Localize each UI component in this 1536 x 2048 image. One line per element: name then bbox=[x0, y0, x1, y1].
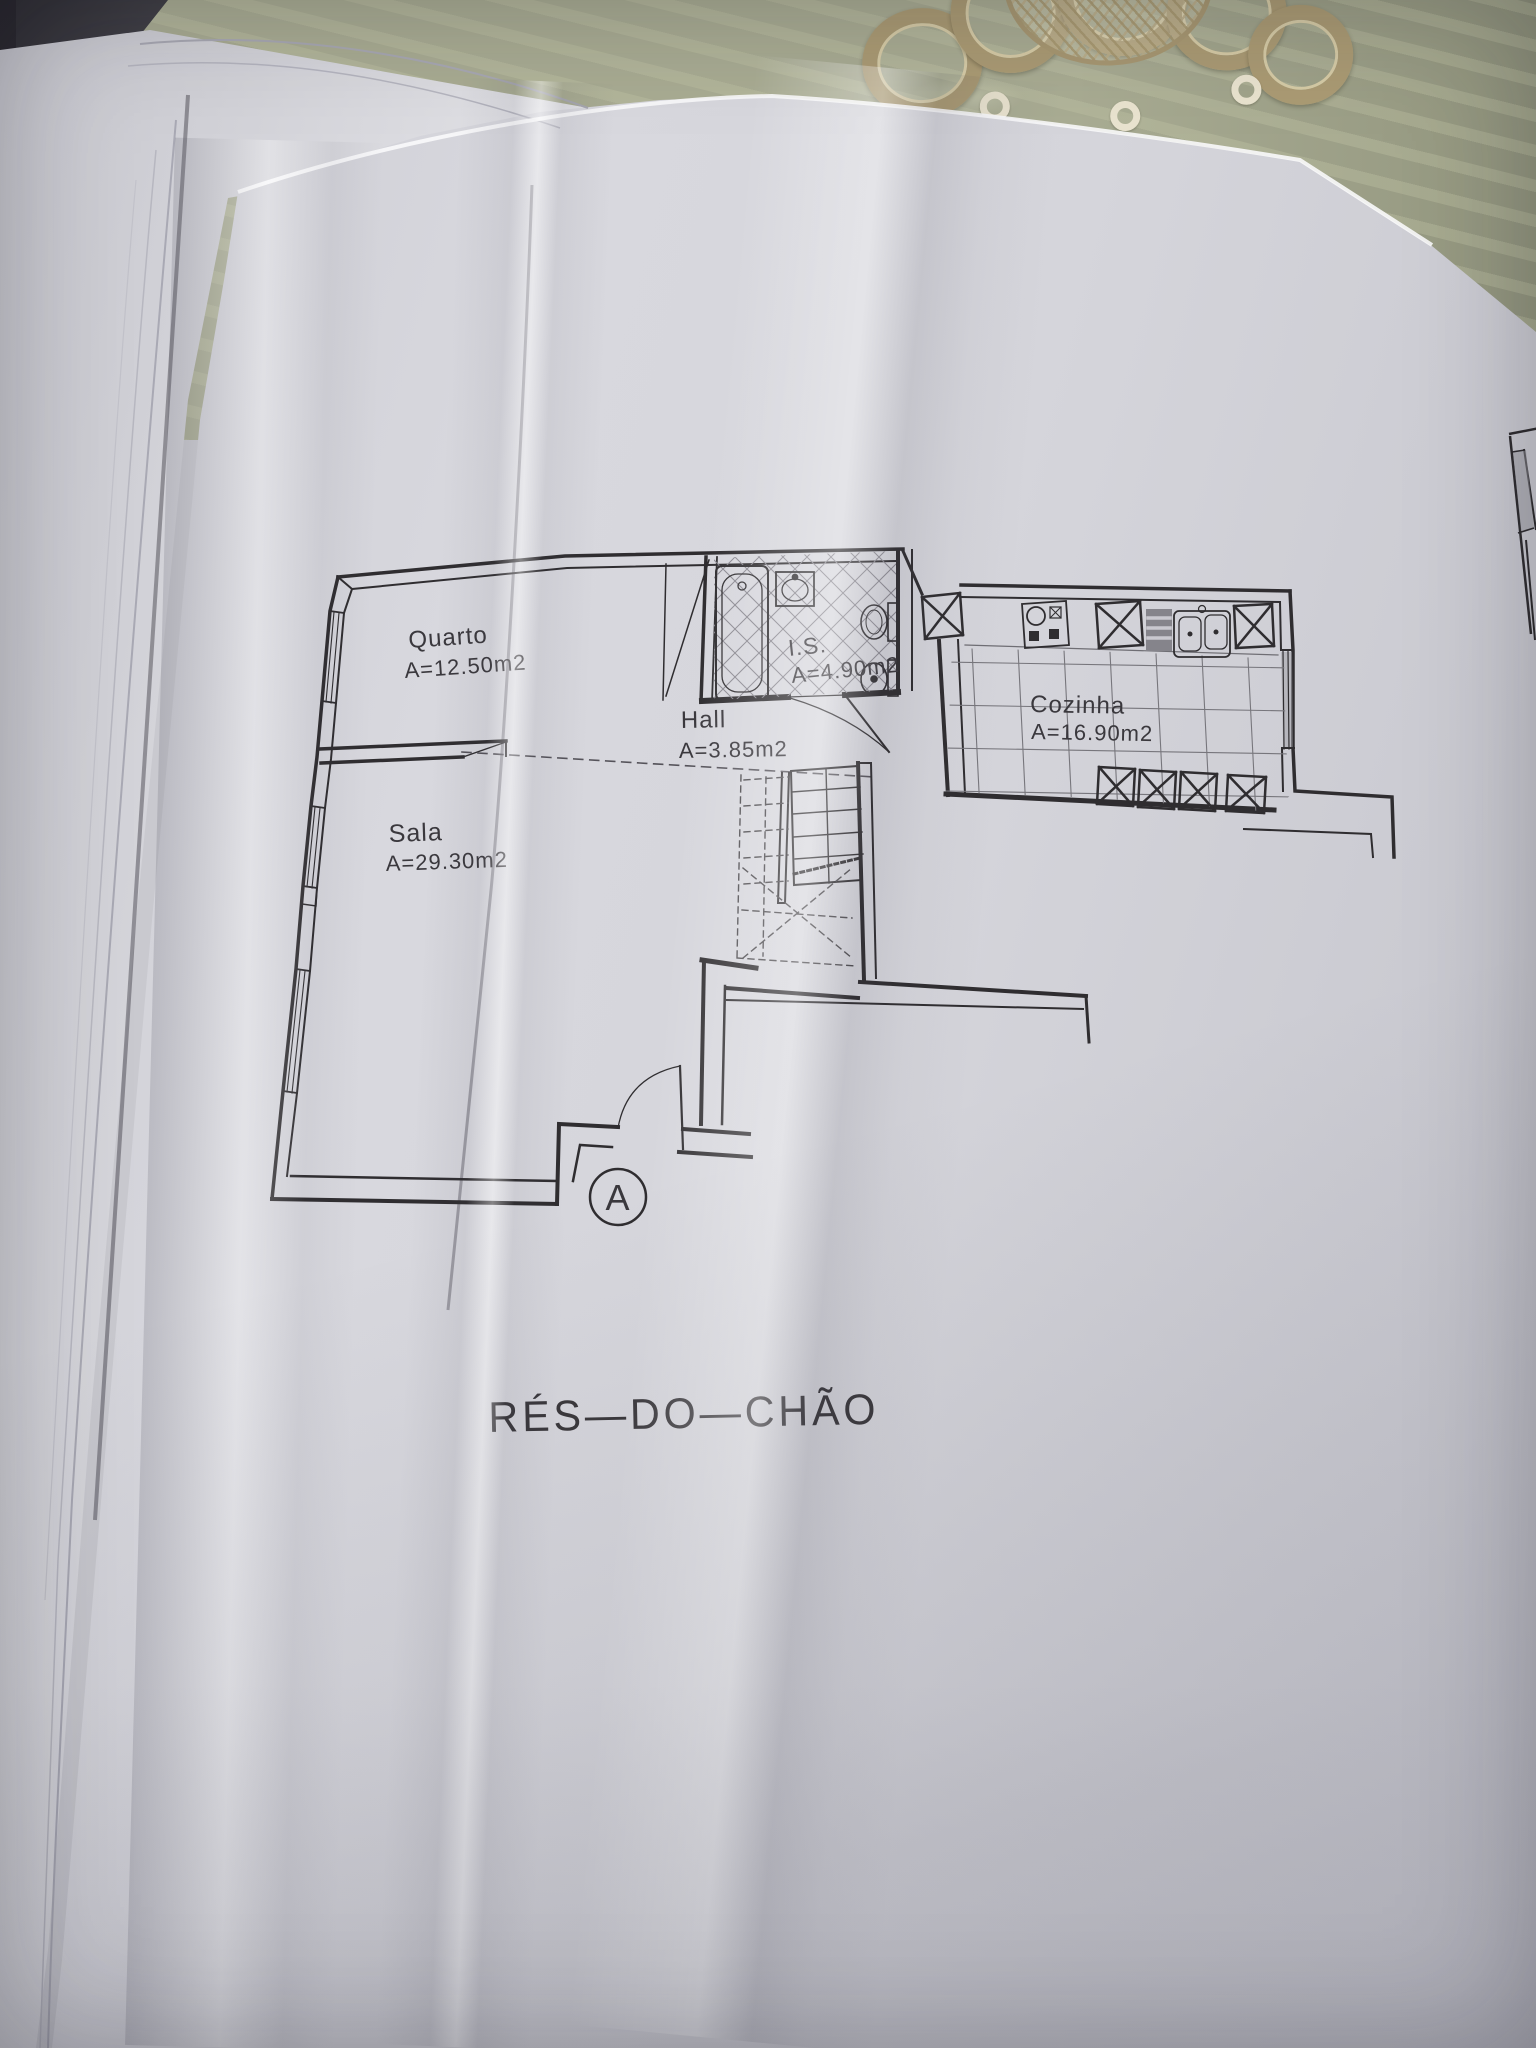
room-area-quarto: A=12.50m2 bbox=[404, 650, 528, 683]
entrance-recess bbox=[557, 1124, 751, 1204]
floor-plan-drawing: A Quarto A=12.50m2 Sala A=29.30m2 Hall A… bbox=[0, 0, 1536, 2048]
bathroom-door bbox=[790, 695, 889, 752]
window-sala-lower bbox=[283, 969, 310, 1093]
kitchen-cabinet-box bbox=[1096, 601, 1143, 648]
room-area-cozinha: A=16.90m2 bbox=[1031, 719, 1154, 746]
toilet bbox=[861, 603, 898, 641]
photo-of-floor-plan: A Quarto A=12.50m2 Sala A=29.30m2 Hall A… bbox=[0, 0, 1536, 2048]
room-labels: Quarto A=12.50m2 Sala A=29.30m2 Hall A=3… bbox=[385, 622, 1153, 876]
stairs bbox=[737, 763, 876, 980]
hall-dashed-line bbox=[462, 752, 875, 777]
wall-corridor bbox=[701, 960, 1089, 1124]
room-label-hall: Hall bbox=[681, 706, 727, 734]
wall-sala-bottom bbox=[272, 1176, 557, 1204]
double-sink bbox=[1174, 606, 1230, 658]
floor-level-title: RÉS—DO—CHÃO bbox=[488, 1386, 892, 1454]
room-area-sala: A=29.30m2 bbox=[385, 847, 508, 876]
dishwasher bbox=[1146, 609, 1172, 651]
floor-plan: A Quarto A=12.50m2 Sala A=29.30m2 Hall A… bbox=[272, 549, 1394, 1225]
room-area-hall: A=3.85m2 bbox=[679, 736, 788, 763]
room-label-cozinha: Cozinha bbox=[1030, 691, 1126, 720]
page-edge-lines bbox=[40, 40, 1432, 2048]
adjacent-sheet-plan-fragment bbox=[1509, 428, 1536, 640]
window-kitchen bbox=[1281, 650, 1294, 749]
kitchen-cabinet-box bbox=[1234, 604, 1274, 648]
bathtub bbox=[716, 566, 768, 700]
section-marker-letter: A bbox=[605, 1177, 630, 1218]
kitchen-shaft-box bbox=[922, 593, 963, 639]
wall-top bbox=[338, 549, 922, 594]
washbasin bbox=[776, 572, 814, 606]
room-label-is: I.S. bbox=[787, 631, 828, 661]
wall-partition-quarto-sala bbox=[319, 741, 506, 763]
room-label-quarto: Quarto bbox=[408, 622, 489, 654]
stove bbox=[1022, 601, 1069, 648]
room-label-sala: Sala bbox=[388, 818, 443, 848]
entrance-door bbox=[618, 1066, 683, 1149]
section-marker-a: A bbox=[590, 1169, 646, 1225]
